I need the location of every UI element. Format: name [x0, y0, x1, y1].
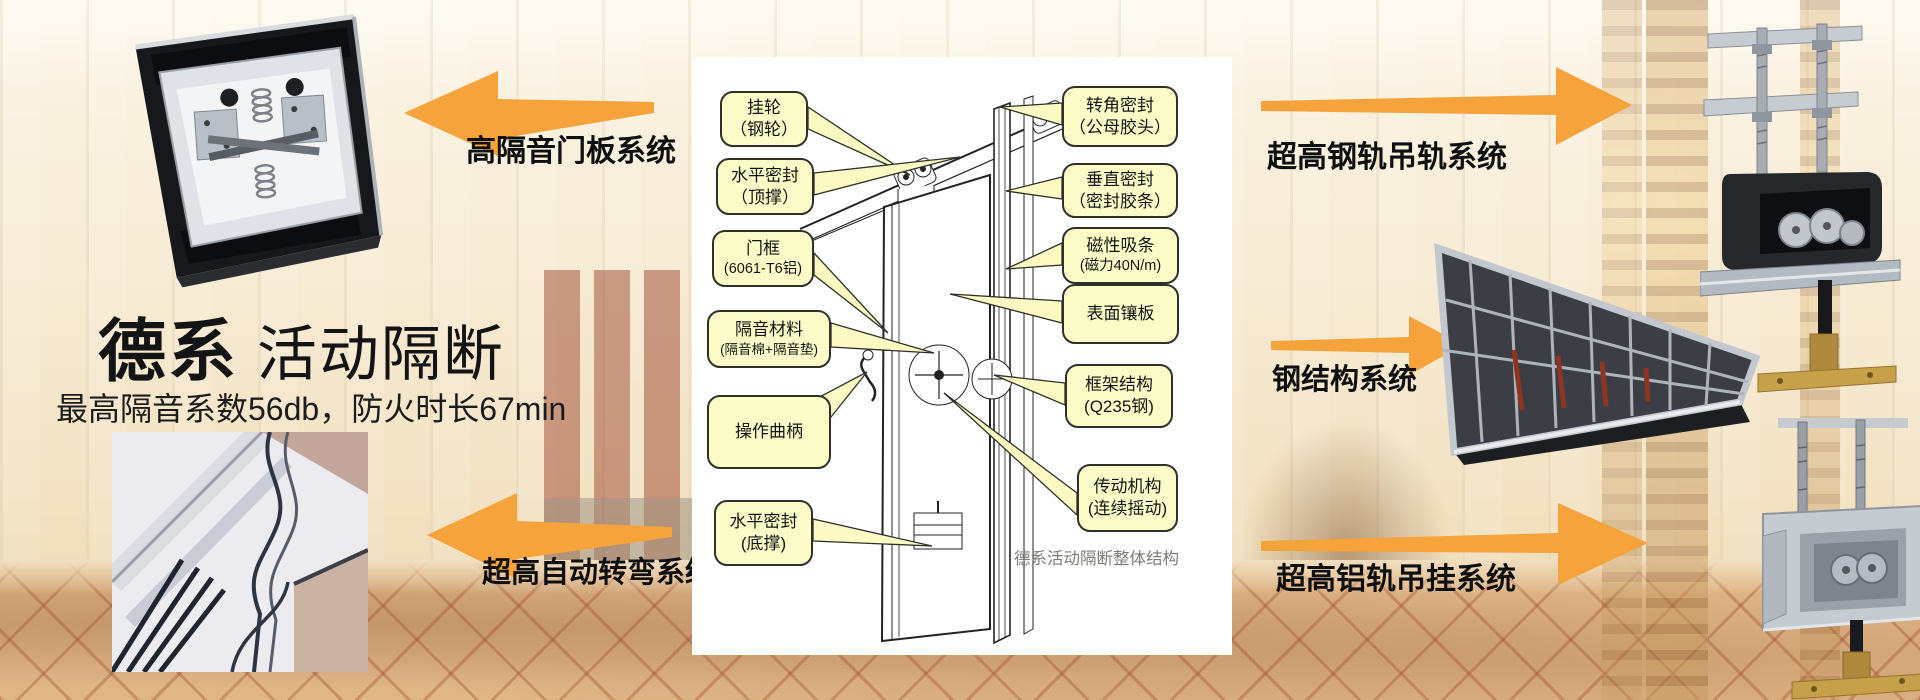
callout-corner-seal: 转角密封 （公母胶头）: [1062, 86, 1178, 147]
technical-diagram-panel: 挂轮 （钢轮） 水平密封 （顶撑） 门框 (6061-T6铝) 隔音材料 (隔音…: [692, 57, 1232, 655]
callout-surface-panel: 表面镶板: [1062, 284, 1179, 344]
system-label-auto-turning: 超高自动转弯系统: [482, 549, 714, 591]
curved-track-photo: [112, 432, 368, 672]
callout-door-frame: 门框 (6061-T6铝): [712, 230, 814, 287]
system-label-steel-structure: 钢结构系统: [1272, 356, 1417, 398]
callout-frame-structure: 框架结构 (Q235钢): [1065, 364, 1173, 428]
callout-hanger-wheel: 挂轮 （钢轮）: [720, 91, 808, 147]
callout-vertical-seal: 垂直密封 （密封胶条）: [1062, 163, 1178, 218]
brand-title: 德系 活动隔断: [98, 296, 505, 395]
system-label-steel-rail: 超高钢轨吊轨系统: [1267, 132, 1507, 176]
diagram-caption: 德系活动隔断整体结构: [1014, 545, 1179, 569]
door-panel-mechanism-photo: [113, 4, 395, 296]
aluminum-rail-trolley-photo: [1738, 418, 1920, 700]
callout-operating-crank: 操作曲柄: [707, 395, 831, 469]
callout-magnetic-strip: 磁性吸条 (磁力40N/m): [1062, 227, 1179, 284]
system-label-door-panel: 高隔音门板系统: [466, 126, 676, 170]
callout-sound-insulation: 隔音材料 (隔音棉+隔音垫): [707, 310, 831, 368]
brand-title-bold: 德系: [98, 314, 238, 390]
callout-horizontal-seal-bottom: 水平密封 (底撑): [714, 500, 813, 566]
callout-drive-mechanism: 传动机构 (连续摇动): [1077, 464, 1178, 532]
callout-horizontal-seal-top: 水平密封 （顶撑）: [716, 158, 814, 215]
slide-canvas: 德系 活动隔断 最高隔音系数56db，防火时长67min 高隔音门板系统 超高自: [0, 0, 1920, 700]
brand-title-regular: 活动隔断: [257, 321, 505, 388]
system-label-aluminum-rail: 超高铝轨吊挂系统: [1276, 554, 1516, 598]
brand-subtitle: 最高隔音系数56db，防火时长67min: [56, 384, 566, 430]
steel-rail-trolley-photo: [1700, 4, 1915, 419]
